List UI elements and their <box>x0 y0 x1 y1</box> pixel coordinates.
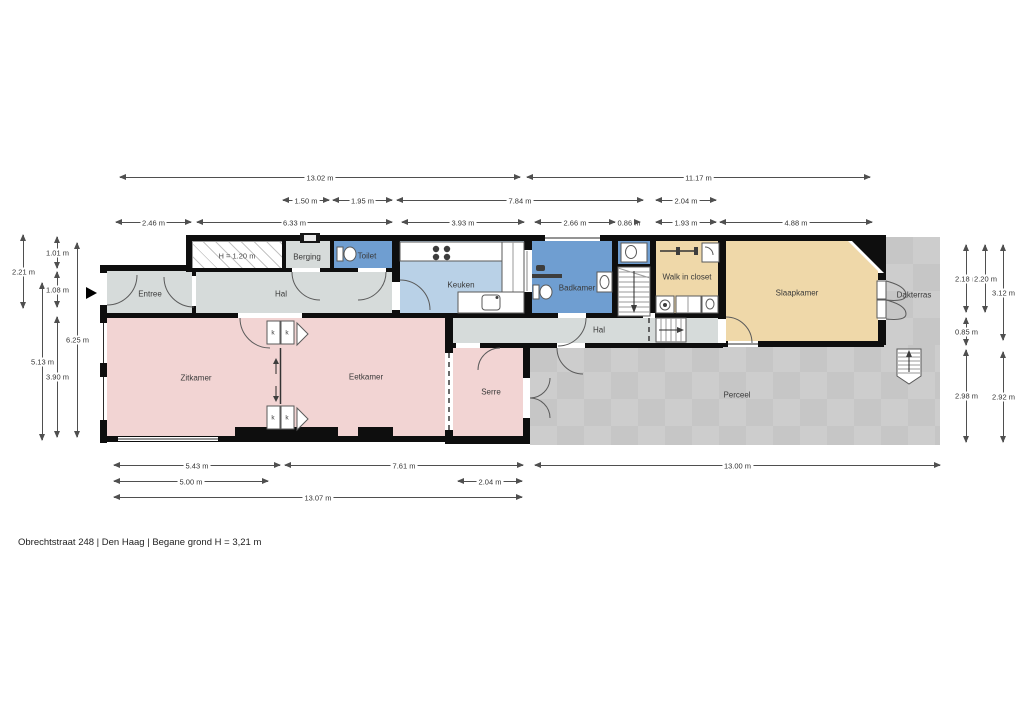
dimension-label: 2.98 m <box>953 392 980 401</box>
dimension-line: 2.04 m <box>656 200 716 201</box>
dimension-label: 2.04 m <box>673 196 700 205</box>
wc-nook-area <box>618 241 650 264</box>
dimension-line: 2.46 m <box>116 222 191 223</box>
dimension-label: 3.93 m <box>450 218 477 227</box>
room-label-zitkamer: Zitkamer <box>180 374 211 383</box>
dimension-line: 7.84 m <box>397 200 643 201</box>
dimension-line: 5.13 m <box>42 283 43 440</box>
dimension-label: 5.13 m <box>29 357 56 366</box>
dimension-label: 1.95 m <box>349 196 376 205</box>
dimension-line: 3.90 m <box>57 317 58 437</box>
terrace-door-leaf <box>877 300 886 318</box>
room-label-toilet: Toilet <box>358 252 377 261</box>
room-label-dakterras: Dakterras <box>897 291 932 300</box>
dimension-label: 2.46 m <box>140 218 167 227</box>
dimension-label: 3.12 m <box>990 288 1017 297</box>
closet-marker: k <box>285 415 288 422</box>
room-label-berging: Berging <box>293 253 321 262</box>
dimension-line: 3.12 m <box>1003 245 1004 340</box>
footer-text: Obrechtstraat 248 | Den Haag | Begane gr… <box>18 537 261 548</box>
height-restriction-label: H = 1.20 m <box>219 252 256 261</box>
terrace-door-leaf <box>877 281 886 299</box>
room-badkamer-area <box>532 241 612 313</box>
dimension-label: 13.02 m <box>304 173 335 182</box>
room-label-hal: Hal <box>275 290 287 299</box>
dimension-line: 4.88 m <box>720 222 872 223</box>
room-label-slaapkamer: Slaapkamer <box>776 289 819 298</box>
dimension-line: 2.21 m <box>23 235 24 308</box>
dimension-label: 2.20 m <box>972 274 999 283</box>
dimension-line: 7.61 m <box>285 465 523 466</box>
dimension-label: 7.61 m <box>391 461 418 470</box>
dimension-line: 13.02 m <box>120 177 520 178</box>
dimension-label: 11.17 m <box>683 173 714 182</box>
staircase-down <box>618 267 650 316</box>
dimension-line: 2.98 m <box>966 350 967 442</box>
room-label-entree: Entree <box>138 290 162 299</box>
dimension-line: 1.93 m <box>656 222 716 223</box>
dimension-label: 0.86 m <box>616 218 643 227</box>
dimension-label: 3.90 m <box>44 373 71 382</box>
floorplan-page: Entree Hal Berging Toilet Keuken Badkame… <box>0 0 1024 724</box>
dimension-line: 1.08 m <box>57 272 58 307</box>
dimension-label: 1.93 m <box>673 218 700 227</box>
dimension-line: 6.33 m <box>197 222 392 223</box>
dimension-line: 2.18 m <box>966 245 967 312</box>
dimension-label: 5.00 m <box>178 477 205 486</box>
dimension-line: 5.43 m <box>114 465 280 466</box>
dimension-line: 0.86 m <box>618 222 640 223</box>
dimension-label: 13.07 m <box>302 493 333 502</box>
dimension-line: 5.00 m <box>114 481 268 482</box>
dimension-line: 6.25 m <box>77 243 78 437</box>
dimension-label: 2.21 m <box>10 267 37 276</box>
dimension-label: 0.85 m <box>953 327 980 336</box>
dimension-label: 2.04 m <box>477 477 504 486</box>
room-label-hal2: Hal <box>593 326 605 335</box>
dimension-label: 2.92 m <box>990 393 1017 402</box>
dimension-label: 5.43 m <box>184 461 211 470</box>
dimension-label: 1.50 m <box>293 196 320 205</box>
closet-marker: k <box>271 415 274 422</box>
room-zitkamer-eetkamer-area <box>107 318 445 436</box>
dimension-label: 13.00 m <box>722 461 753 470</box>
dimension-line: 0.85 m <box>966 318 967 345</box>
dimension-label: 7.84 m <box>507 196 534 205</box>
entrance-arrow <box>86 287 97 299</box>
dimension-label: 4.88 m <box>783 218 810 227</box>
dimension-line: 1.01 m <box>57 237 58 268</box>
closet-marker: k <box>285 330 288 337</box>
room-hal2-area <box>453 317 718 343</box>
closet-marker: k <box>271 330 274 337</box>
room-label-walk-in-closet: Walk in closet <box>662 273 711 282</box>
dimension-line: 1.50 m <box>283 200 329 201</box>
dimension-label: 2.66 m <box>562 218 589 227</box>
dimension-line: 2.66 m <box>535 222 615 223</box>
room-label-eetkamer: Eetkamer <box>349 373 383 382</box>
room-keuken-area <box>400 241 524 313</box>
room-label-badkamer: Badkamer <box>559 284 595 293</box>
dimension-line: 2.92 m <box>1003 352 1004 442</box>
room-label-serre: Serre <box>481 388 501 397</box>
dimension-line: 2.04 m <box>458 481 522 482</box>
dimension-line: 2.20 m <box>985 245 986 312</box>
dimension-label: 1.01 m <box>44 248 71 257</box>
room-label-keuken: Keuken <box>447 281 474 290</box>
dimension-label: 6.25 m <box>64 336 91 345</box>
room-label-perceel: Perceel <box>723 391 750 400</box>
dimension-line: 3.93 m <box>402 222 524 223</box>
dimension-label: 1.08 m <box>44 285 71 294</box>
dimension-line: 11.17 m <box>527 177 870 178</box>
dimension-line: 1.95 m <box>333 200 392 201</box>
dimension-line: 13.07 m <box>114 497 522 498</box>
dimension-label: 6.33 m <box>281 218 308 227</box>
dimension-line: 13.00 m <box>535 465 940 466</box>
